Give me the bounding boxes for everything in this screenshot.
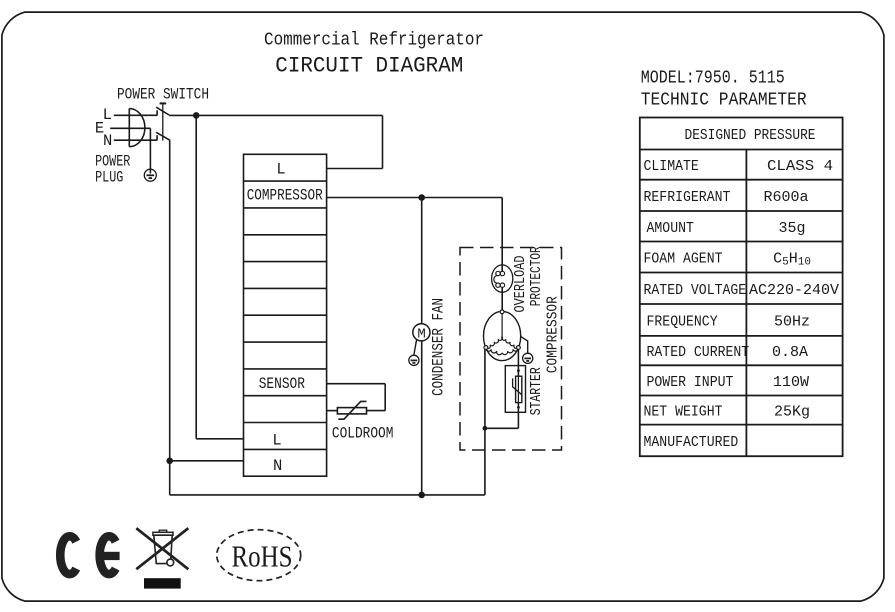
svg-text:35g: 35g: [778, 220, 805, 237]
svg-text:FOAM AGENT: FOAM AGENT: [644, 251, 723, 268]
svg-text:L: L: [276, 160, 285, 178]
svg-text:RATED CURRENT: RATED CURRENT: [647, 344, 750, 361]
svg-text:OVERLOAD: OVERLOAD: [513, 256, 529, 313]
svg-text:PLUG: PLUG: [95, 169, 123, 187]
svg-text:R600a: R600a: [763, 189, 808, 206]
svg-text:NET WEIGHT: NET WEIGHT: [644, 404, 723, 421]
svg-text:SENSOR: SENSOR: [259, 375, 305, 393]
svg-text:L: L: [272, 431, 281, 449]
svg-text:110W: 110W: [773, 374, 809, 391]
svg-text:COMPRESSOR: COMPRESSOR: [247, 186, 323, 204]
svg-text:MANUFACTURED: MANUFACTURED: [644, 434, 739, 451]
svg-text:CONDENSER FAN: CONDENSER FAN: [430, 298, 448, 396]
svg-text:CLIMATE: CLIMATE: [644, 158, 699, 175]
svg-text:0.8A: 0.8A: [772, 344, 808, 361]
svg-text:POWER SWITCH: POWER SWITCH: [117, 86, 209, 104]
svg-text:POWER INPUT: POWER INPUT: [647, 374, 734, 391]
svg-text:COLDROOM: COLDROOM: [332, 425, 394, 443]
svg-text:DESIGNED PRESSURE: DESIGNED PRESSURE: [685, 127, 816, 144]
svg-text:AC220-240V: AC220-240V: [749, 282, 839, 299]
svg-text:STARTER: STARTER: [529, 367, 545, 415]
svg-text:REFRIGERANT: REFRIGERANT: [644, 189, 731, 206]
svg-text:CIRCUIT DIAGRAM: CIRCUIT DIAGRAM: [275, 53, 463, 79]
svg-text:25Kg: 25Kg: [774, 404, 810, 421]
svg-text:PROTECTOR: PROTECTOR: [529, 246, 545, 306]
svg-text:AMOUNT: AMOUNT: [647, 220, 694, 237]
svg-text:CLASS 4: CLASS 4: [767, 158, 833, 175]
svg-text:Commercial Refrigerator: Commercial Refrigerator: [264, 30, 484, 50]
svg-text:MODEL:7950. 5115: MODEL:7950. 5115: [641, 68, 785, 88]
svg-text:RoHS: RoHS: [232, 539, 293, 574]
svg-text:M: M: [417, 327, 425, 343]
svg-text:N: N: [103, 132, 112, 150]
svg-text:50Hz: 50Hz: [774, 314, 810, 331]
svg-text:TECHNIC PARAMETER: TECHNIC PARAMETER: [641, 91, 807, 111]
svg-text:FREQUENCY: FREQUENCY: [647, 314, 718, 331]
svg-text:N: N: [273, 457, 282, 475]
svg-text:RATED VOLTAGE: RATED VOLTAGE: [644, 282, 747, 299]
svg-text:COMPRESSOR: COMPRESSOR: [546, 296, 562, 373]
